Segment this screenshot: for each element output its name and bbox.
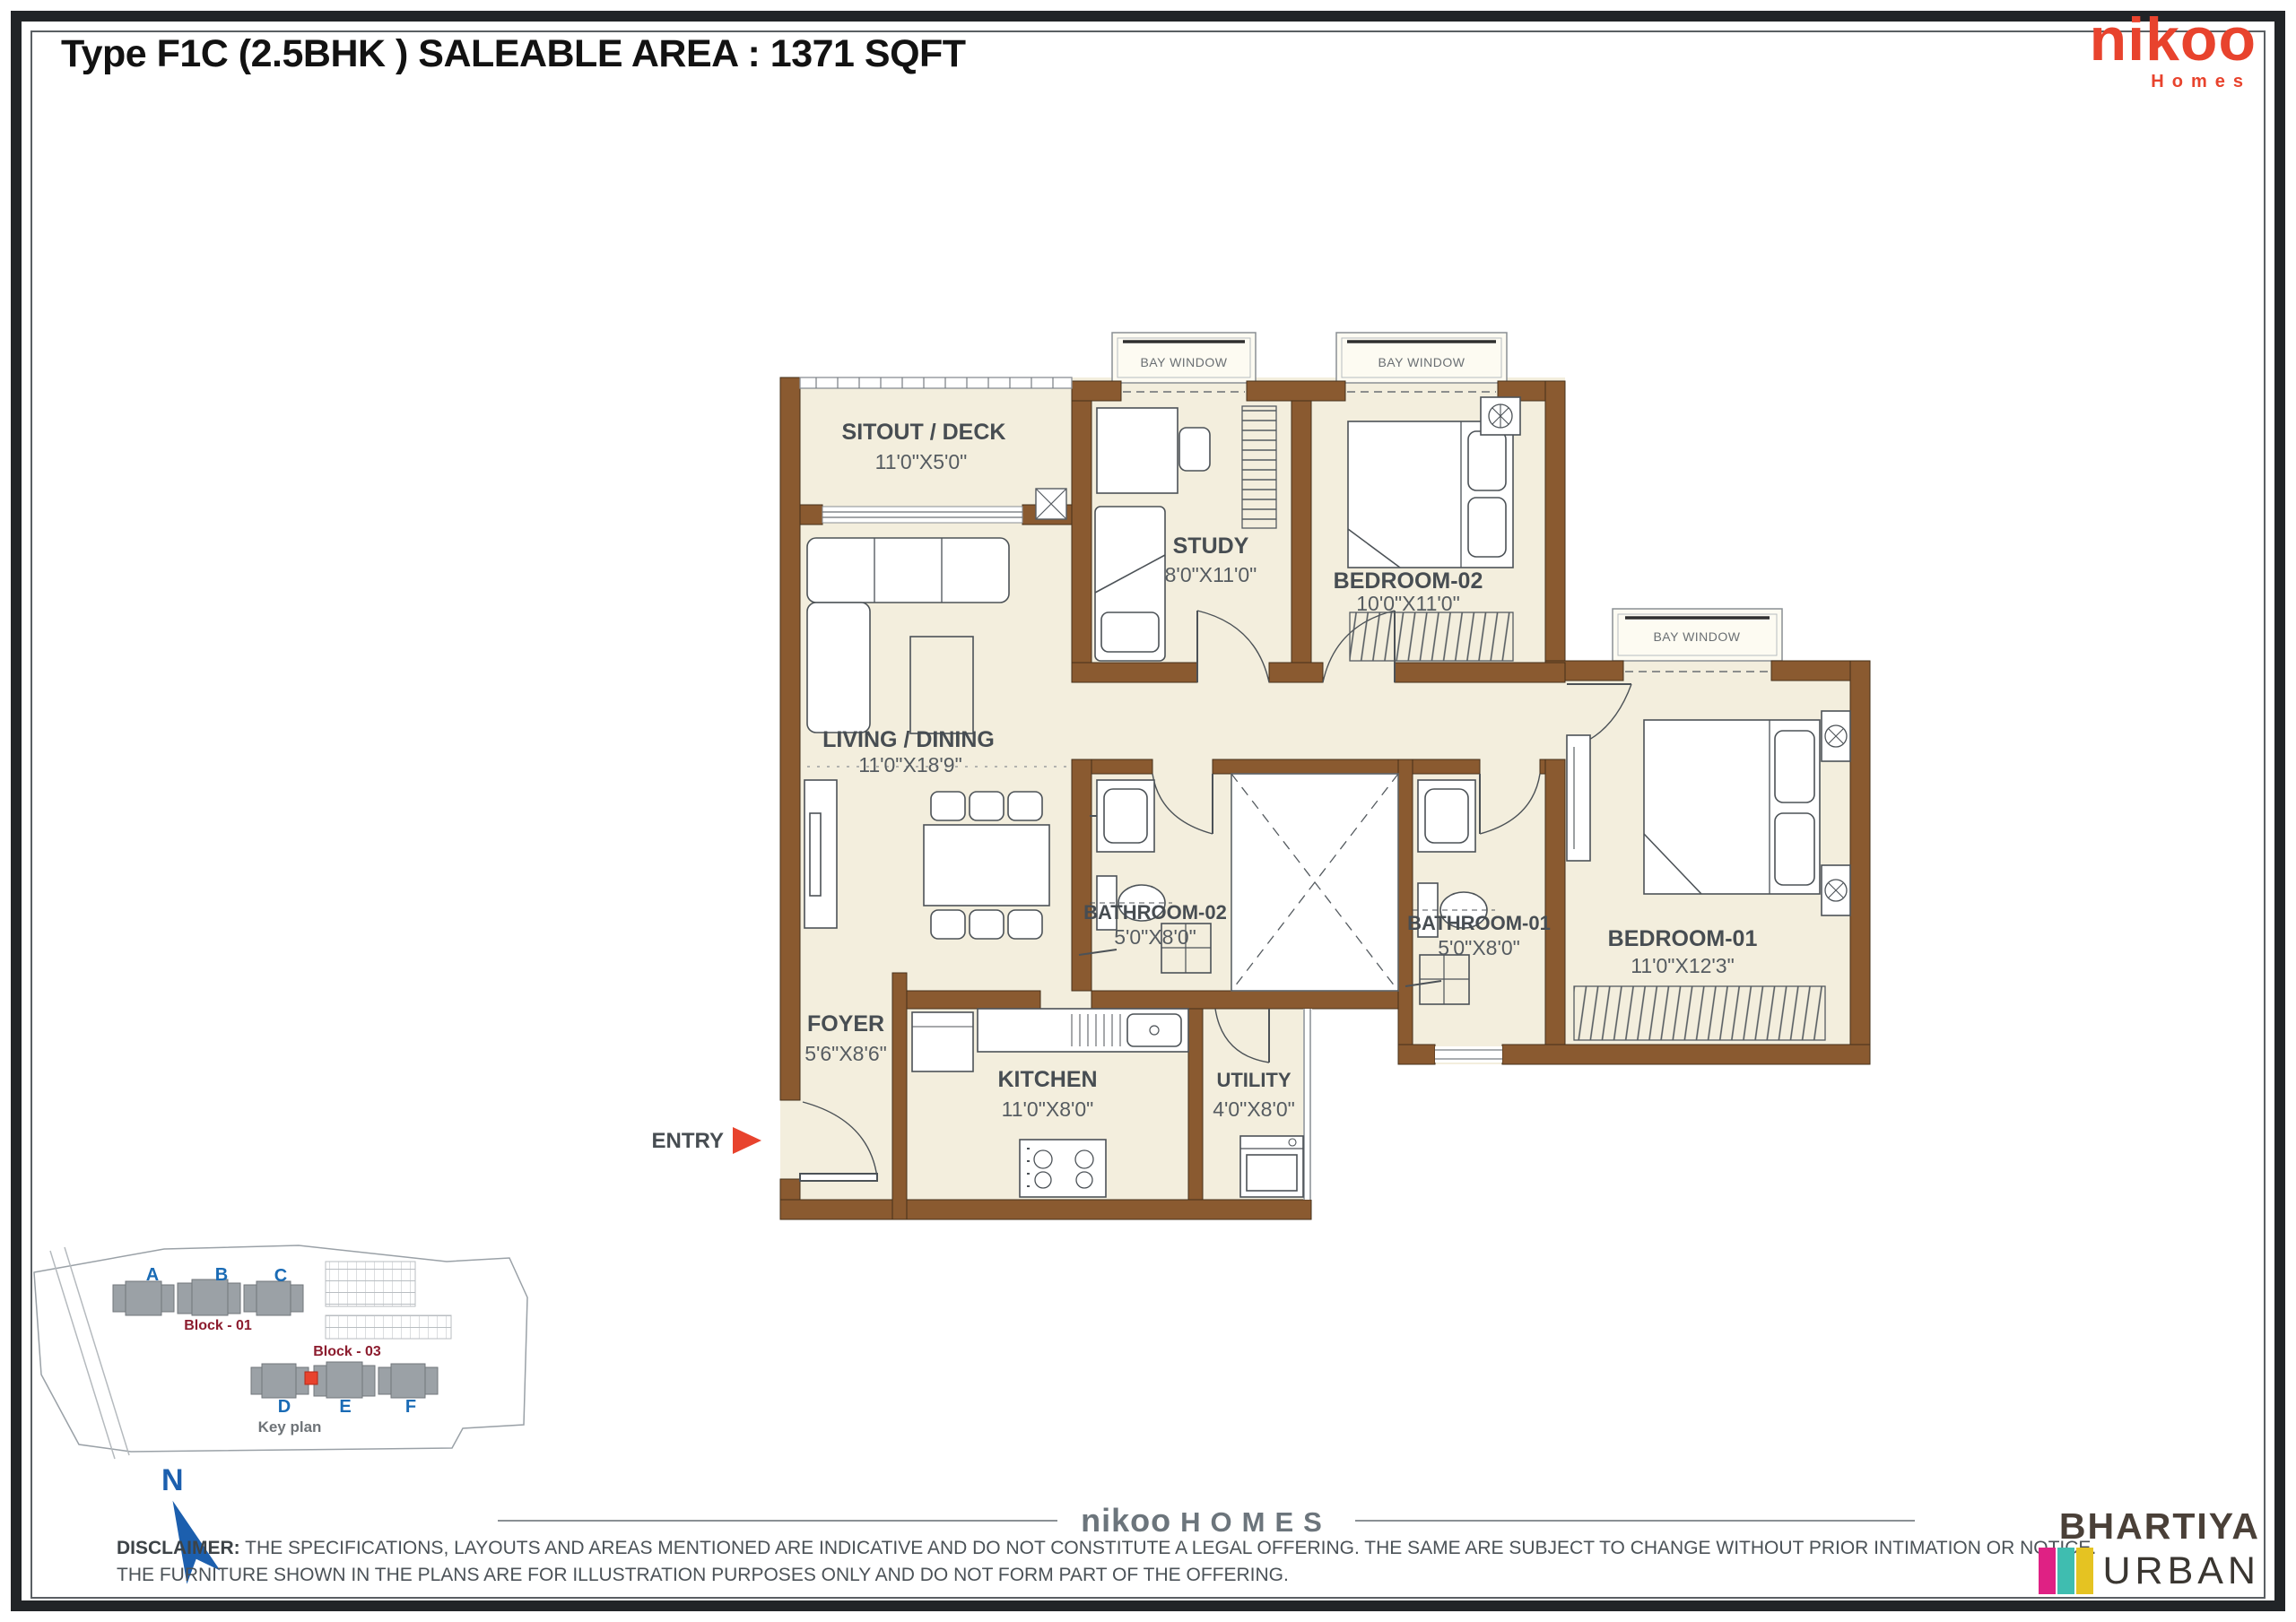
block-01-label: Block - 01 [184,1318,252,1333]
urban-text: URBAN [2102,1549,2260,1592]
bay-window-study: BAY WINDOW [1112,333,1256,392]
parking-grid [326,1262,415,1306]
kitchen-counter [978,1009,1188,1052]
room-dims-living: 11'0"X18'9" [858,753,962,776]
tv-unit [804,780,837,928]
entry-marker: ENTRY [652,1127,761,1154]
site-road [50,1247,129,1459]
disclaimer-line-2: THE FURNITURE SHOWN IN THE PLANS ARE FOR… [117,1562,1937,1589]
room-dims-kitchen: 11'0"X8'0" [1002,1097,1094,1121]
room-label-utility: UTILITY [1216,1069,1291,1091]
room-label-study: STUDY [1173,533,1249,559]
parking-grid [326,1315,451,1339]
tower-label-e: E [339,1397,351,1417]
room-label-living: LIVING / DINING [822,727,995,752]
bay-window-label: BAY WINDOW [1378,355,1465,369]
footer-nikoo: nikoo [1081,1502,1171,1539]
room-label-bedroom-02: BEDROOM-02 [1334,568,1483,594]
ceiling-fan-icon [1822,711,1850,761]
page-title: Type F1C (2.5BHK ) SALEABLE AREA : 1371 … [61,32,966,76]
footer-rule-right [1355,1520,1915,1522]
room-dims-sitout: 11'0"X5'0" [875,450,968,473]
sitout-sliding-window [800,505,1072,525]
nikoo-homes-logo: nikoo Homes [2090,9,2257,92]
bay-window-label: BAY WINDOW [1140,355,1227,369]
study-bed [1095,507,1165,661]
duct-box [1036,489,1066,519]
washing-machine [1240,1136,1303,1197]
block-03-label: Block - 03 [313,1344,381,1359]
entry-label: ENTRY [652,1129,724,1153]
disclaimer: DISCLAIMER: THE SPECIFICATIONS, LAYOUTS … [117,1535,1937,1589]
logo-bar-yellow [2076,1548,2093,1594]
tower-label-d: D [278,1397,291,1417]
room-dims-bathroom-02: 5'0"X8'0" [1114,925,1196,949]
sitout-railing [800,377,1072,388]
bathroom-01-window [1435,1046,1502,1063]
room-dims-foyer: 5'6"X8'6" [804,1042,887,1065]
room-label-bathroom-02: BATHROOM-02 [1083,901,1227,924]
nikoo-logo-text: nikoo [2090,5,2257,74]
disclaimer-label: DISCLAIMER: [117,1538,240,1558]
bhartiya-urban-logo: BHARTIYA URBAN [2039,1506,2260,1594]
tower-label-f: F [405,1397,416,1417]
tower-label-a: A [146,1265,159,1285]
bedroom-01-bed [1644,720,1820,894]
room-label-kitchen: KITCHEN [997,1067,1097,1092]
room-dims-study: 8'0"X11'0" [1165,563,1257,586]
footer-homes: HOMES [1180,1506,1332,1538]
bedroom-02-wardrobe [1350,612,1513,661]
key-plan-caption: Key plan [258,1418,322,1436]
room-dims-bathroom-01: 5'0"X8'0" [1438,936,1520,959]
key-plan: A B C Block - 01 Block - 03 D E F Key pl… [25,1240,563,1491]
utility-window [1303,1009,1312,1200]
footer-brand-text: nikooHOMES [1081,1502,1332,1540]
bedroom-01-wardrobe [1574,986,1825,1040]
room-label-bedroom-01: BEDROOM-01 [1608,926,1758,951]
bathroom-02-basin [1090,780,1154,852]
ceiling-fan-icon [1481,397,1520,435]
kitchen-fridge [912,1012,973,1071]
study-shelf [1242,406,1276,528]
logo-bar-teal [2057,1548,2074,1594]
bathroom-01-basin [1418,780,1475,852]
north-label: N [161,1463,184,1497]
block-03-buildings [251,1362,438,1398]
room-label-foyer: FOYER [807,1011,884,1037]
tower-label-b: B [215,1265,228,1285]
tower-label-c: C [274,1266,287,1286]
floor-plan-sheet: Type F1C (2.5BHK ) SALEABLE AREA : 1371 … [0,0,2296,1622]
room-label-sitout: SITOUT / DECK [842,420,1006,445]
bedroom-02-bed [1348,421,1513,568]
service-shaft [1231,774,1398,991]
room-label-bathroom-01: BATHROOM-01 [1407,912,1551,934]
kitchen-stove [1020,1140,1106,1197]
nikoo-logo-tagline: Homes [2090,72,2251,92]
unit-location-marker [305,1372,317,1384]
dining-table-set [924,792,1049,939]
logo-bar-pink [2039,1548,2056,1594]
footer-rule-left [498,1520,1057,1522]
bedroom-01-dresser [1567,735,1590,861]
entry-arrow-icon [733,1127,761,1154]
bhartiya-text: BHARTIYA [2039,1506,2260,1546]
room-dims-utility: 4'0"X8'0" [1213,1097,1295,1121]
floor-plan-drawing: BAY WINDOW BAY WINDOW BAY WINDOW [632,327,1883,1233]
ceiling-fan-icon [1822,865,1850,915]
room-dims-bedroom-01: 11'0"X12'3" [1631,954,1735,977]
room-dims-bedroom-02: 10'0"X11'0" [1356,592,1460,615]
bay-window-bedroom-02: BAY WINDOW [1336,333,1507,392]
disclaimer-line-1: DISCLAIMER: THE SPECIFICATIONS, LAYOUTS … [117,1535,1937,1562]
bay-window-label: BAY WINDOW [1653,629,1740,644]
